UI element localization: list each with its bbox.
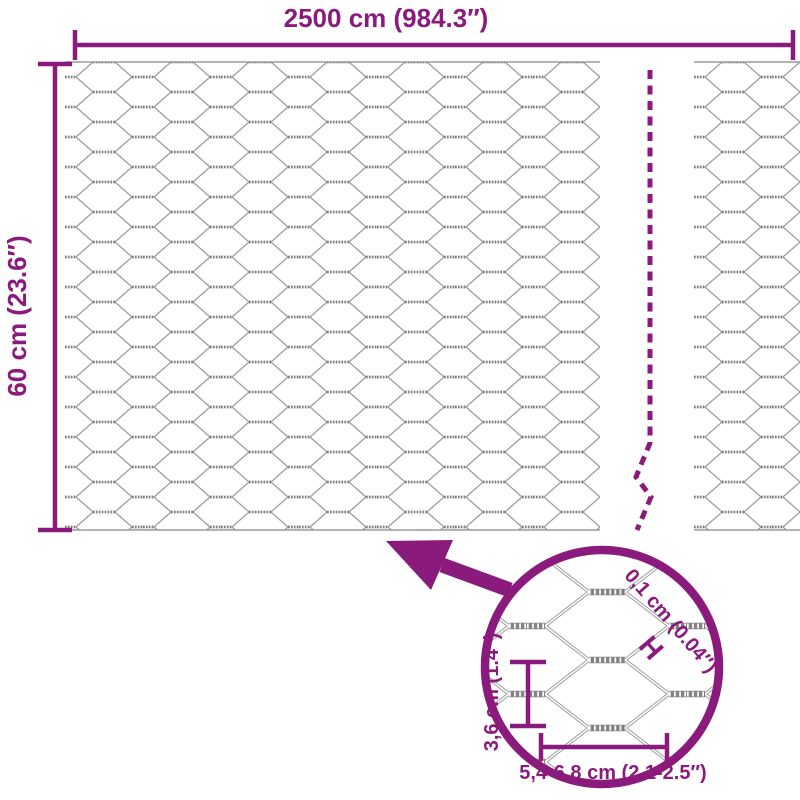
break-line <box>636 70 651 530</box>
product-dimension-diagram: 2500 cm (984.3″) 60 cm (23.6″) 3,6 cm (1… <box>0 0 800 800</box>
mesh-panel-left <box>65 62 600 530</box>
height-dimension-label: 60 cm (23.6″) <box>2 235 32 396</box>
width-dimension-label: 2500 cm (984.3″) <box>284 3 489 33</box>
zoom-arrow-icon <box>386 540 513 597</box>
height-dimension: 60 cm (23.6″) <box>2 64 72 530</box>
width-dimension: 2500 cm (984.3″) <box>75 3 793 60</box>
mesh-panel-right <box>694 62 800 530</box>
